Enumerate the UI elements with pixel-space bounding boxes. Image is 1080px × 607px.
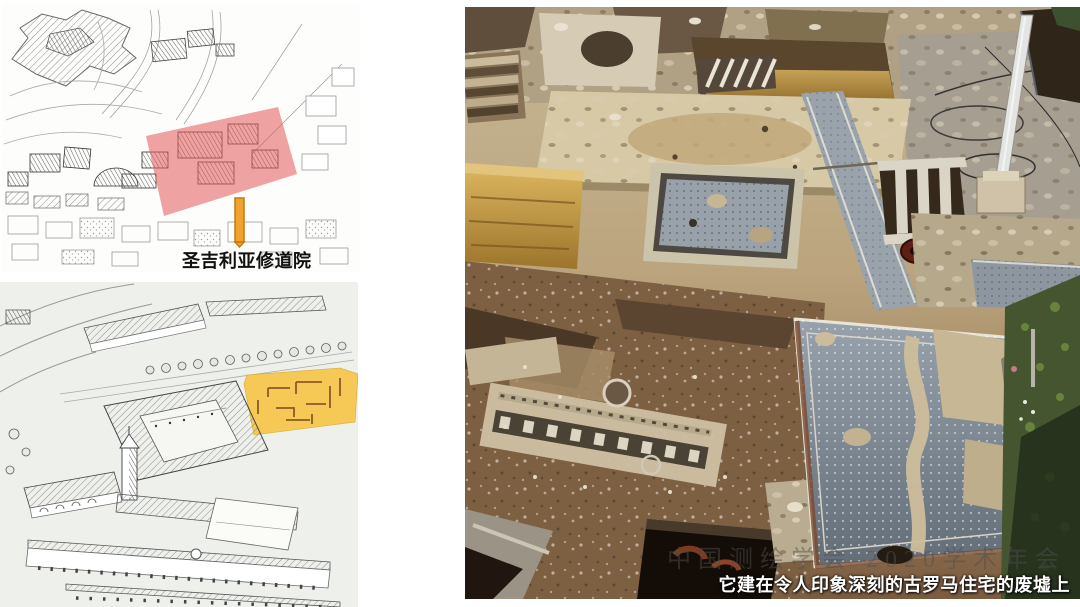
monastery-label: 圣吉利亚修道院 [182,247,312,272]
monastery-engraving [0,282,358,607]
watermark-text: 中国测绘学会 2020学术年会 [667,539,1066,574]
pink-flower [1011,366,1017,372]
mosaic-panel-center [643,163,805,269]
stairs [465,51,526,124]
excavation-photo [465,7,1080,599]
city-engraving [2,4,360,272]
golden-wall-block [465,163,585,269]
monastery-engraving-panel [0,282,358,607]
excavation-photo-panel: 中国测绘学会 2020学术年会 它建在令人印象深刻的古罗马住宅的废墟上 [465,7,1080,599]
slide-canvas: 圣吉利亚修道院 [0,0,1080,607]
scaffold-bar [1031,329,1035,387]
city-engraving-panel: 圣吉利亚修道院 [2,4,360,272]
photo-caption: 它建在令人印象深刻的古罗马住宅的废墟上 [719,571,1071,597]
pointer-arrow [235,198,244,247]
upper-trench [691,37,895,103]
